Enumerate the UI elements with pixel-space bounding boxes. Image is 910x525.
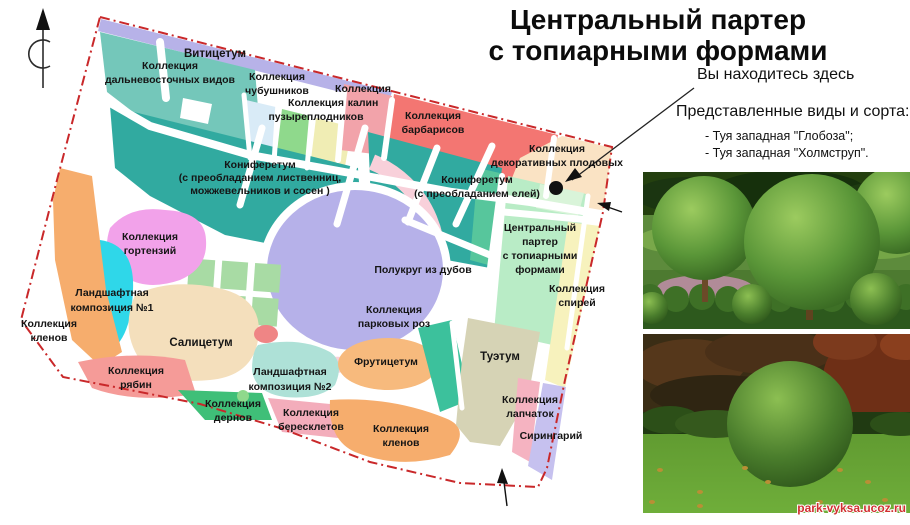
photo-divider [643,329,910,334]
zone-label-central-parter: формами [515,264,564,276]
zone-label-barbaris: Коллекция [405,110,461,122]
photo-topiary-trees [635,166,910,332]
zone-label-klen-left: Коллекция [21,318,77,330]
zone-label-chubushnik: Коллекция [249,71,305,83]
zone-label-far-east: дальневосточных видов [105,74,236,86]
zone-label-klen-bottom: Коллекция [373,423,429,435]
zone-label-deren: дернов [214,412,253,424]
zone-label-puzyreplodnik: пузыреплодников [268,111,364,123]
zone-label-spirea: спирей [558,297,595,309]
zone-label-klen-bottom: кленов [383,437,421,449]
zone-label-lk2: Ландшафтная [253,366,327,378]
zone-label-konif-listv: Кониферетум [224,159,296,171]
watermark: park-vyksa.ucoz.ru [797,501,906,515]
north-compass-icon [29,8,50,88]
park-scheme-poster: Витицетум Коллекция дальневосточных видо… [0,0,910,525]
zone-label-klen-left: кленов [31,332,69,344]
zone-label-gortenzia: Коллекция [122,231,178,243]
zone-label-tuetum: Туэтум [480,351,520,363]
zone-label-beresklet: бересклетов [278,421,344,433]
you-are-here-label: Вы находитесь здесь [697,66,854,84]
zone-label-central-parter: с топиарными [503,250,578,262]
zone-label-lapchatka: лапчаток [506,408,554,420]
zone-label-kalina: калин [348,97,379,109]
zone-label-siringary: Сирингарий [520,430,583,442]
zone-label-park-roses: парковых роз [358,318,430,330]
zone-label-spirea: Коллекция [549,283,605,295]
zone-label-dekor-plod: декоративных плодовых [491,157,623,169]
zone-label-puzyreplodnik: Коллекция [288,97,344,109]
zone-label-central-parter: Центральный [504,222,576,234]
species-item: - Туя западная "Глобоза"; [705,129,853,143]
photo-topiary-sphere [635,324,910,513]
species-heading: Представленные виды и сорта: [676,103,909,121]
zone-label-dekor-plod: Коллекция [529,143,585,155]
zone-label-lk1: композиция №1 [71,302,154,314]
zone-label-gortenzia: гортензий [124,245,176,257]
page-title-line2: с топиарными формами [418,35,898,66]
zone-label-polukrug: Полукруг из дубов [374,264,472,276]
zone-red-small [254,325,278,343]
zone-label-deren: Коллекция [205,398,261,410]
page-title: Центральный партер с топиарными формами [418,4,898,67]
zone-label-lk2: композиция №2 [249,381,332,393]
you-are-here-dot [549,181,563,195]
zone-label-konif-eli: (с преобладанием елей) [414,188,540,200]
zone-label-lapchatka: Коллекция [502,394,558,406]
zone-label-kalina: Коллекция [335,83,391,95]
zone-label-ryabina: рябин [120,379,152,391]
zone-label-far-east: Коллекция [142,60,198,72]
zone-label-salicetum: Салицетум [169,337,232,349]
zone-label-vititsetum: Витицетум [184,48,246,60]
zone-label-konif-listv: (с преобладанием лиственниц, [179,172,342,184]
zone-label-ryabina: Коллекция [108,365,164,377]
zone-label-konif-listv: можжевельников и сосен ) [190,185,329,197]
zone-label-lk1: Ландшафтная [75,287,149,299]
species-item: - Туя западная "Холмструп". [705,146,869,160]
page-title-line1: Центральный партер [418,4,898,35]
zone-label-konif-eli: Кониферетум [441,174,513,186]
zone-label-barbaris: барбарисов [402,124,465,136]
zone-label-beresklet: Коллекция [283,407,339,419]
zone-label-central-parter: партер [522,236,558,248]
zone-label-park-roses: Коллекция [366,304,422,316]
zone-label-chubushnik: чубушников [245,85,309,97]
zone-label-fruticetum: Фрутицетум [354,356,418,368]
